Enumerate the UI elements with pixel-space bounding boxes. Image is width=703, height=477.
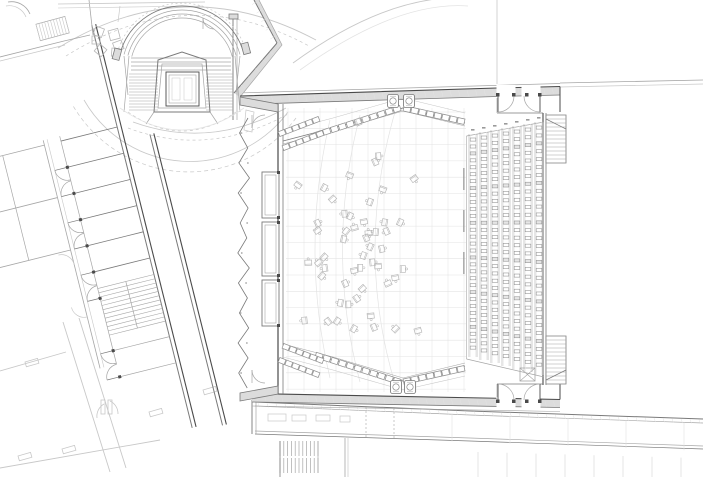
- background: [0, 0, 703, 477]
- floor-plan-drawing: [0, 0, 703, 477]
- stair-bottom-right: [546, 336, 566, 384]
- floor-plan-page: [0, 0, 703, 477]
- stair-top-right: [546, 115, 566, 163]
- stage-left-wall-panels: [262, 171, 280, 327]
